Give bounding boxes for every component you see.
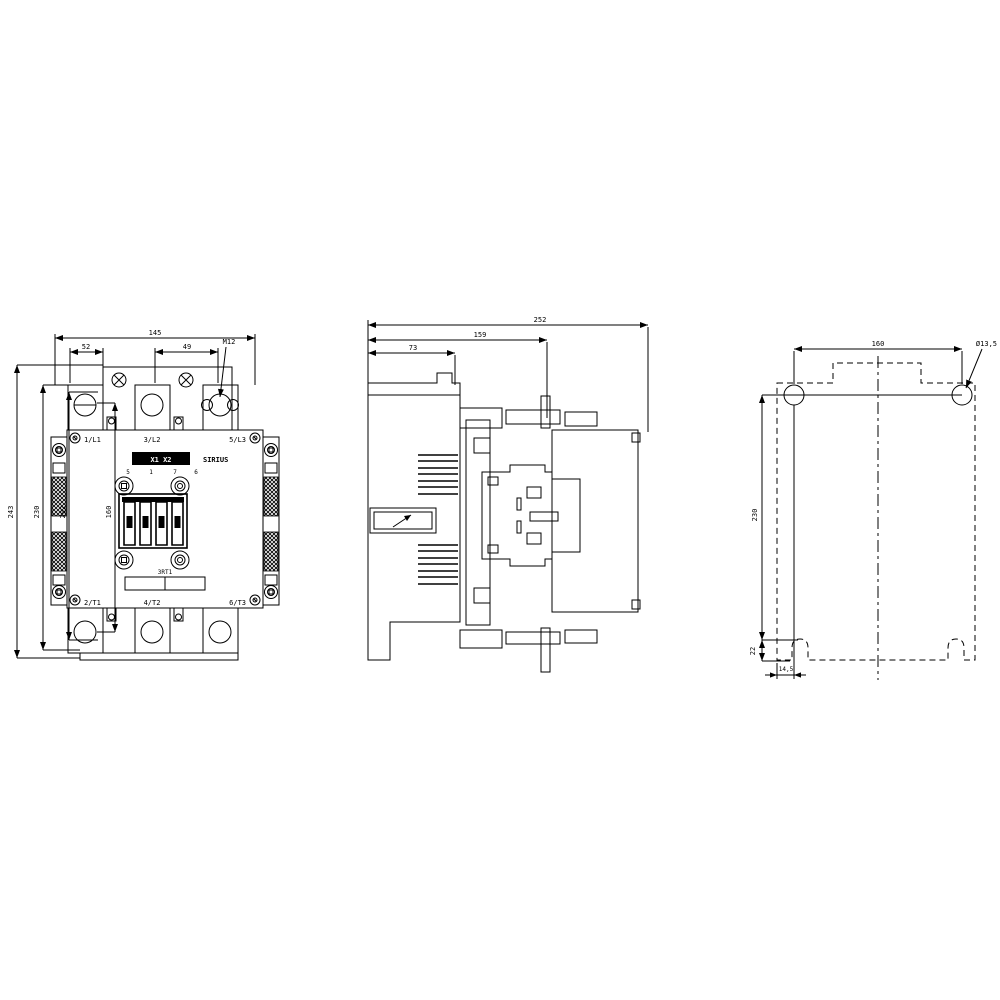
terminal-label-4T2: 4/T2 [144, 599, 161, 607]
corner-screw-icon [70, 595, 80, 605]
terminal-lug-L2 [135, 385, 170, 430]
dim-right-label: 49 [183, 343, 191, 351]
dim-width-label: 145 [149, 329, 162, 337]
terminal-hole-T2 [141, 621, 163, 643]
dim-hole-height-label: 230 [751, 509, 759, 522]
terminal-screw-label: M12 [223, 338, 236, 346]
bottom-plate [80, 653, 238, 660]
dim-height-outer-label: 243 [7, 506, 15, 519]
indicator-window [370, 508, 436, 533]
terminal-lug-T2 [135, 608, 170, 653]
coil-pin-label: 5 [126, 469, 130, 476]
aux-terminal-block [264, 477, 278, 516]
type-label: 3RT1 [158, 569, 173, 576]
vent-slats-upper [418, 455, 458, 494]
top-clip-notches [107, 417, 183, 430]
terminal-label-3L2: 3/L2 [144, 436, 161, 444]
cross-screw-icon [179, 373, 193, 387]
rail-screw-icon [265, 444, 278, 457]
drilling-plan-view: 160 Ø13,5 230 22 14,5 [749, 340, 997, 680]
coil-connector-block [119, 494, 187, 548]
terminal-label-5L3: 5/L3 [229, 436, 246, 444]
marking-strip-label: X1 X2 [150, 456, 171, 464]
rail-screw-icon [53, 586, 66, 599]
front-bottom-terminal-block [68, 608, 238, 660]
cross-screw-icon [112, 373, 126, 387]
rail-tab [53, 463, 65, 473]
mounting-clip [474, 588, 490, 603]
dim-slot-width: 14,5 [765, 666, 806, 678]
side-view: 252 159 73 [368, 316, 648, 672]
bottom-clip-notches [107, 608, 183, 621]
coil-screw-icon [171, 477, 189, 495]
side-clip [632, 600, 640, 609]
aux-contact-rail-left [51, 437, 67, 605]
coil-pin-label: 6 [194, 469, 198, 476]
vent-slats-lower [418, 545, 458, 584]
rail-screw-icon [265, 586, 278, 599]
contact-block-details [488, 477, 558, 553]
terminal-label-1L1: 1/L1 [84, 436, 101, 444]
dim-slot-width-label: 14,5 [779, 666, 794, 673]
arc-chamber-outline [552, 430, 638, 612]
dim-slot-offset-label: 22 [749, 647, 757, 655]
terminal-lug-T3 [203, 608, 238, 653]
aux-terminal-block [264, 532, 278, 571]
aux-contact-rail-right [263, 437, 279, 605]
contact-block-outline [482, 465, 580, 566]
dim-depth-label: 252 [534, 316, 547, 324]
dim-left-label: 52 [82, 343, 90, 351]
side-clip [632, 433, 640, 442]
nameplate [125, 577, 205, 590]
dimension-drawing-sheet: 145 52 49 M12 243 230 202 160 [0, 0, 1000, 1000]
coil-pin-label: 1 [149, 469, 153, 476]
side-outline [368, 373, 640, 672]
footprint-outline-dashed [777, 363, 975, 660]
dim-height-2-label: 230 [33, 506, 41, 519]
dim-height-inner-label: 160 [105, 506, 113, 519]
corner-screw-icon [250, 433, 260, 443]
rail-tab [265, 463, 277, 473]
drawing-svg: 145 52 49 M12 243 230 202 160 [0, 0, 1000, 1000]
coil-screw-icon [115, 551, 133, 569]
arrow-icon [393, 515, 411, 527]
side-bottom-terminals [460, 628, 597, 672]
rail-tab [53, 575, 65, 585]
hole-diameter-label: Ø13,5 [976, 340, 997, 348]
terminal-lug-T1 [68, 608, 103, 653]
front-top-terminal-block [68, 367, 239, 430]
coil-pin-label: 7 [173, 469, 177, 476]
plan-dimensions: 160 Ø13,5 230 22 14,5 [749, 340, 997, 679]
coil-screw-icon [171, 551, 189, 569]
front-body: 1/L1 3/L2 5/L3 2/T1 4/T2 6/T3 X1 X2 SIRI… [67, 430, 263, 608]
terminal-hole-L2 [141, 394, 163, 416]
front-view: 145 52 49 M12 243 230 202 160 [7, 329, 279, 660]
rail-screw-icon [53, 444, 66, 457]
terminal-label-2T1: 2/T1 [84, 599, 101, 607]
plan-extension-lines [762, 351, 962, 679]
side-extension-lines [368, 320, 648, 432]
terminal-hole-T3 [209, 621, 231, 643]
aux-terminal-block [52, 477, 66, 516]
terminal-label-6T3: 6/T3 [229, 599, 246, 607]
dim-depth-front-label: 73 [409, 344, 417, 352]
brand-label: SIRIUS [203, 456, 228, 464]
coil-housing-outline [368, 373, 460, 660]
side-top-terminals [460, 396, 597, 428]
mounting-clip [474, 438, 490, 453]
hole-diameter-leader [966, 349, 982, 388]
terminal-screw-leader [220, 347, 226, 397]
mounting-plate [466, 420, 490, 625]
lug-side-bump [228, 400, 239, 411]
corner-screw-icon [250, 595, 260, 605]
coil-screw-icon [115, 477, 133, 495]
aux-terminal-block [52, 532, 66, 571]
rail-tab [265, 575, 277, 585]
corner-screw-icon [70, 433, 80, 443]
dim-depth-mid-label: 159 [474, 331, 487, 339]
dim-hole-spacing-label: 160 [872, 340, 885, 348]
side-dimensions: 252 159 73 [368, 316, 648, 432]
